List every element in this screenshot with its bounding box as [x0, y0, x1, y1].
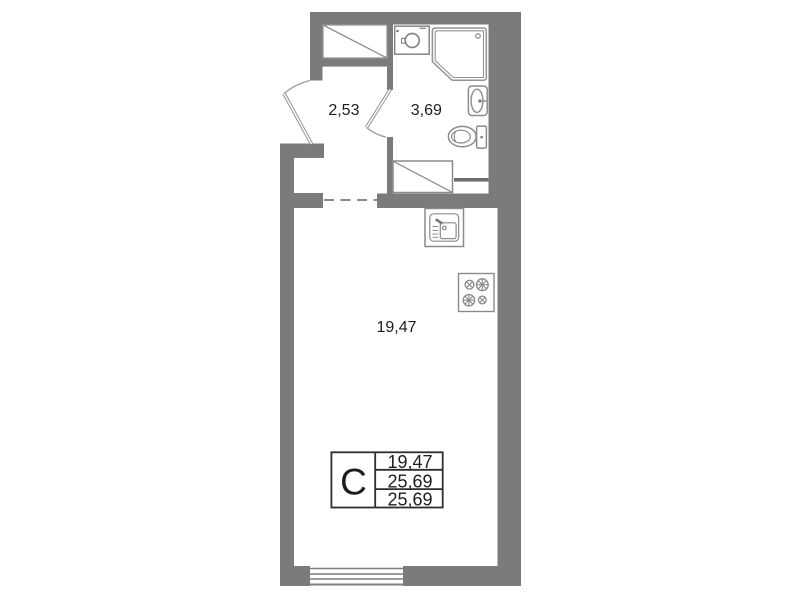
- svg-text:C: C: [340, 462, 367, 503]
- svg-text:19,47: 19,47: [387, 452, 432, 472]
- svg-text:25,69: 25,69: [387, 471, 432, 491]
- svg-text:2,53: 2,53: [328, 102, 359, 119]
- svg-text:3,69: 3,69: [411, 102, 442, 119]
- svg-text:25,69: 25,69: [387, 490, 432, 510]
- svg-text:19,47: 19,47: [376, 319, 416, 336]
